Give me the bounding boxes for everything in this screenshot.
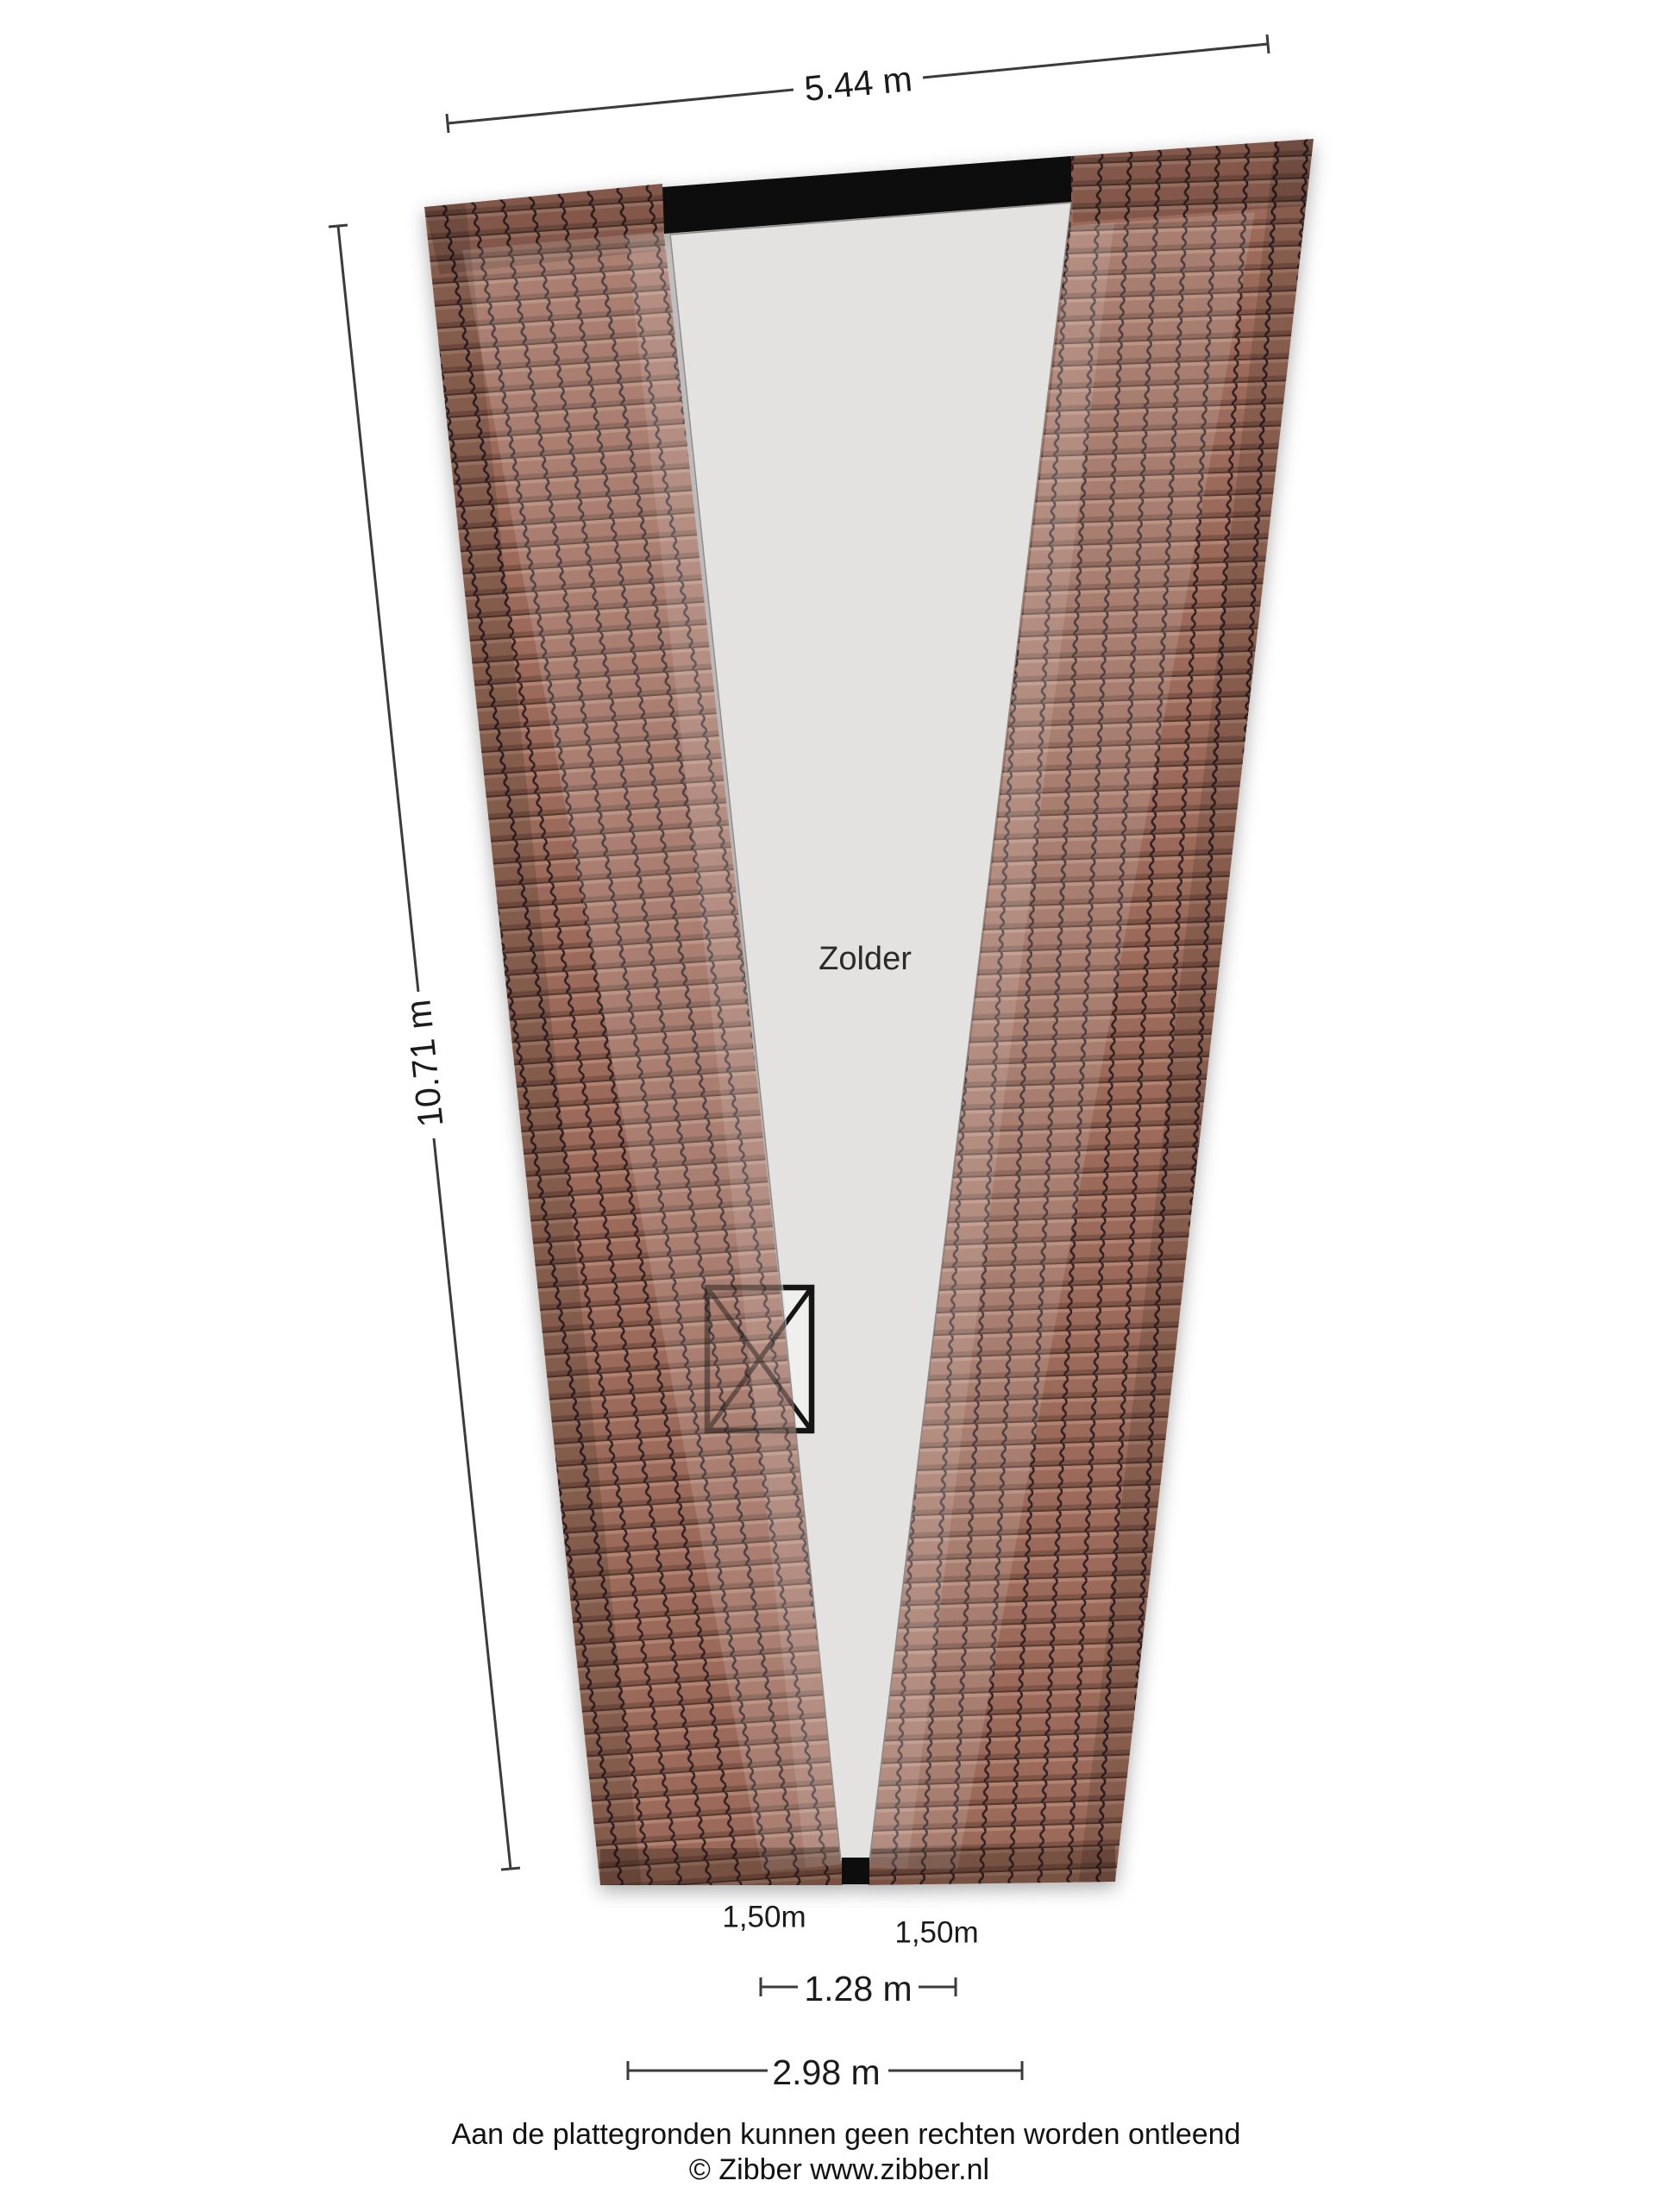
footer-disclaimer: Aan de plattegronden kunnen geen rechten… [452, 2118, 1241, 2151]
floorplan-canvas: 5.44 m 10.71 m Zolder 1,50m 1,50m 1.28 m… [0, 0, 1656, 2208]
attic-floorplan: 5.44 m 10.71 m Zolder 1,50m 1,50m 1.28 m… [0, 0, 1656, 2208]
top-width-label: 5.44 m [802, 59, 913, 109]
roof-left-eave-shade [600, 1847, 843, 1885]
left-height-label: 10.71 m [398, 998, 450, 1129]
ceiling-height-right-label: 1,50m [894, 1916, 978, 1950]
attic-roof-shape [379, 112, 1363, 1940]
footer-copyright: © Zibber www.zibber.nl [689, 2153, 989, 2186]
bottom-width-label: 2.98 m [772, 2052, 880, 2092]
roof-right-eave-shade [869, 1845, 1115, 1885]
room-label: Zolder [819, 941, 912, 977]
inner-width-label: 1.28 m [804, 1969, 912, 2008]
bottom-wall-segment [842, 1858, 869, 1884]
ceiling-height-left-label: 1,50m [722, 1901, 806, 1934]
